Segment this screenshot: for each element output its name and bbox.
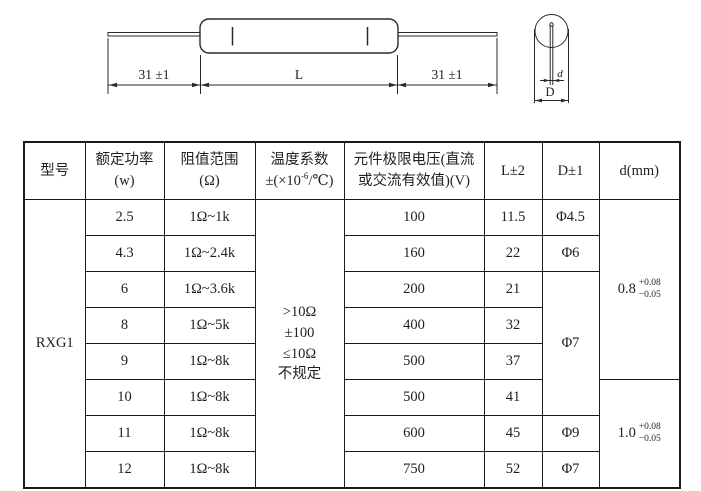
length-cell: 52 — [484, 452, 542, 489]
power-cell: 9 — [85, 344, 164, 380]
header-limit-voltage: 元件极限电压(直流 或交流有效值)(V) — [344, 142, 484, 200]
left-lead-dimension-label: 31 ±1 — [138, 67, 169, 82]
resistance-cell: 1Ω~5k — [164, 308, 255, 344]
table-row: RXG1 2.5 1Ω~1k >10Ω ±100 ≤10Ω 不规定 100 11… — [24, 200, 680, 236]
header-resistance-range: 阻值范围 (Ω) — [164, 142, 255, 200]
dimension-arrowheads — [109, 79, 568, 103]
header-model: 型号 — [24, 142, 85, 200]
table-row: 6 1Ω~3.6k 200 21 Φ7 — [24, 272, 680, 308]
diameter-cell: Φ7 — [542, 272, 599, 416]
body-diameter-label: D — [545, 85, 554, 99]
datasheet-page: 31 ±1 L 31 ±1 d D 型号 额定功率 (w) 阻值范围 (Ω) — [0, 0, 701, 491]
resistance-cell: 1Ω~8k — [164, 452, 255, 489]
power-cell: 12 — [85, 452, 164, 489]
resistance-cell: 1Ω~3.6k — [164, 272, 255, 308]
voltage-cell: 500 — [344, 344, 484, 380]
resistance-cell: 1Ω~8k — [164, 380, 255, 416]
diameter-cell: Φ4.5 — [542, 200, 599, 236]
spec-table: 型号 额定功率 (w) 阻值范围 (Ω) 温度系数 ±(×10-6/℃) 元件极… — [23, 141, 681, 489]
resistance-cell: 1Ω~2.4k — [164, 236, 255, 272]
length-cell: 21 — [484, 272, 542, 308]
voltage-cell: 200 — [344, 272, 484, 308]
table-row: 12 1Ω~8k 750 52 Φ7 — [24, 452, 680, 489]
table-row: 4.3 1Ω~2.4k 160 22 Φ6 — [24, 236, 680, 272]
lead-diameter-cell: 0.8+0.08−0.05 — [599, 200, 680, 380]
diameter-cell: Φ9 — [542, 416, 599, 452]
resistor-dimension-drawing: 31 ±1 L 31 ±1 d D — [0, 0, 701, 135]
diameter-cell: Φ6 — [542, 236, 599, 272]
lead-end-cap — [550, 23, 553, 26]
length-cell: 11.5 — [484, 200, 542, 236]
resistance-cell: 1Ω~1k — [164, 200, 255, 236]
resistor-body — [200, 19, 398, 53]
power-cell: 2.5 — [85, 200, 164, 236]
power-cell: 6 — [85, 272, 164, 308]
power-cell: 8 — [85, 308, 164, 344]
left-lead-wire — [108, 33, 201, 37]
resistance-cell: 1Ω~8k — [164, 344, 255, 380]
header-row: 型号 额定功率 (w) 阻值范围 (Ω) 温度系数 ±(×10-6/℃) 元件极… — [24, 142, 680, 200]
model-cell: RXG1 — [24, 200, 85, 489]
body-length-dimension-label: L — [295, 67, 303, 82]
length-cell: 32 — [484, 308, 542, 344]
voltage-cell: 750 — [344, 452, 484, 489]
length-cell: 41 — [484, 380, 542, 416]
length-cell: 37 — [484, 344, 542, 380]
power-cell: 11 — [85, 416, 164, 452]
header-diameter: D±1 — [542, 142, 599, 200]
voltage-cell: 500 — [344, 380, 484, 416]
temp-coefficient-cell: >10Ω ±100 ≤10Ω 不规定 — [255, 200, 344, 489]
right-lead-wire — [397, 33, 497, 37]
diameter-cell: Φ7 — [542, 452, 599, 489]
voltage-cell: 400 — [344, 308, 484, 344]
voltage-cell: 600 — [344, 416, 484, 452]
length-cell: 22 — [484, 236, 542, 272]
power-cell: 4.3 — [85, 236, 164, 272]
table-row: 11 1Ω~8k 600 45 Φ9 — [24, 416, 680, 452]
header-length: L±2 — [484, 142, 542, 200]
header-temp-coefficient: 温度系数 ±(×10-6/℃) — [255, 142, 344, 200]
power-cell: 10 — [85, 380, 164, 416]
voltage-cell: 160 — [344, 236, 484, 272]
body-cross-section — [535, 15, 568, 48]
resistance-cell: 1Ω~8k — [164, 416, 255, 452]
lead-diameter-cell: 1.0+0.08−0.05 — [599, 380, 680, 489]
header-rated-power: 额定功率 (w) — [85, 142, 164, 200]
length-cell: 45 — [484, 416, 542, 452]
header-lead-diameter: d(mm) — [599, 142, 680, 200]
lead-diameter-label: d — [557, 68, 563, 80]
right-lead-dimension-label: 31 ±1 — [431, 67, 462, 82]
voltage-cell: 100 — [344, 200, 484, 236]
